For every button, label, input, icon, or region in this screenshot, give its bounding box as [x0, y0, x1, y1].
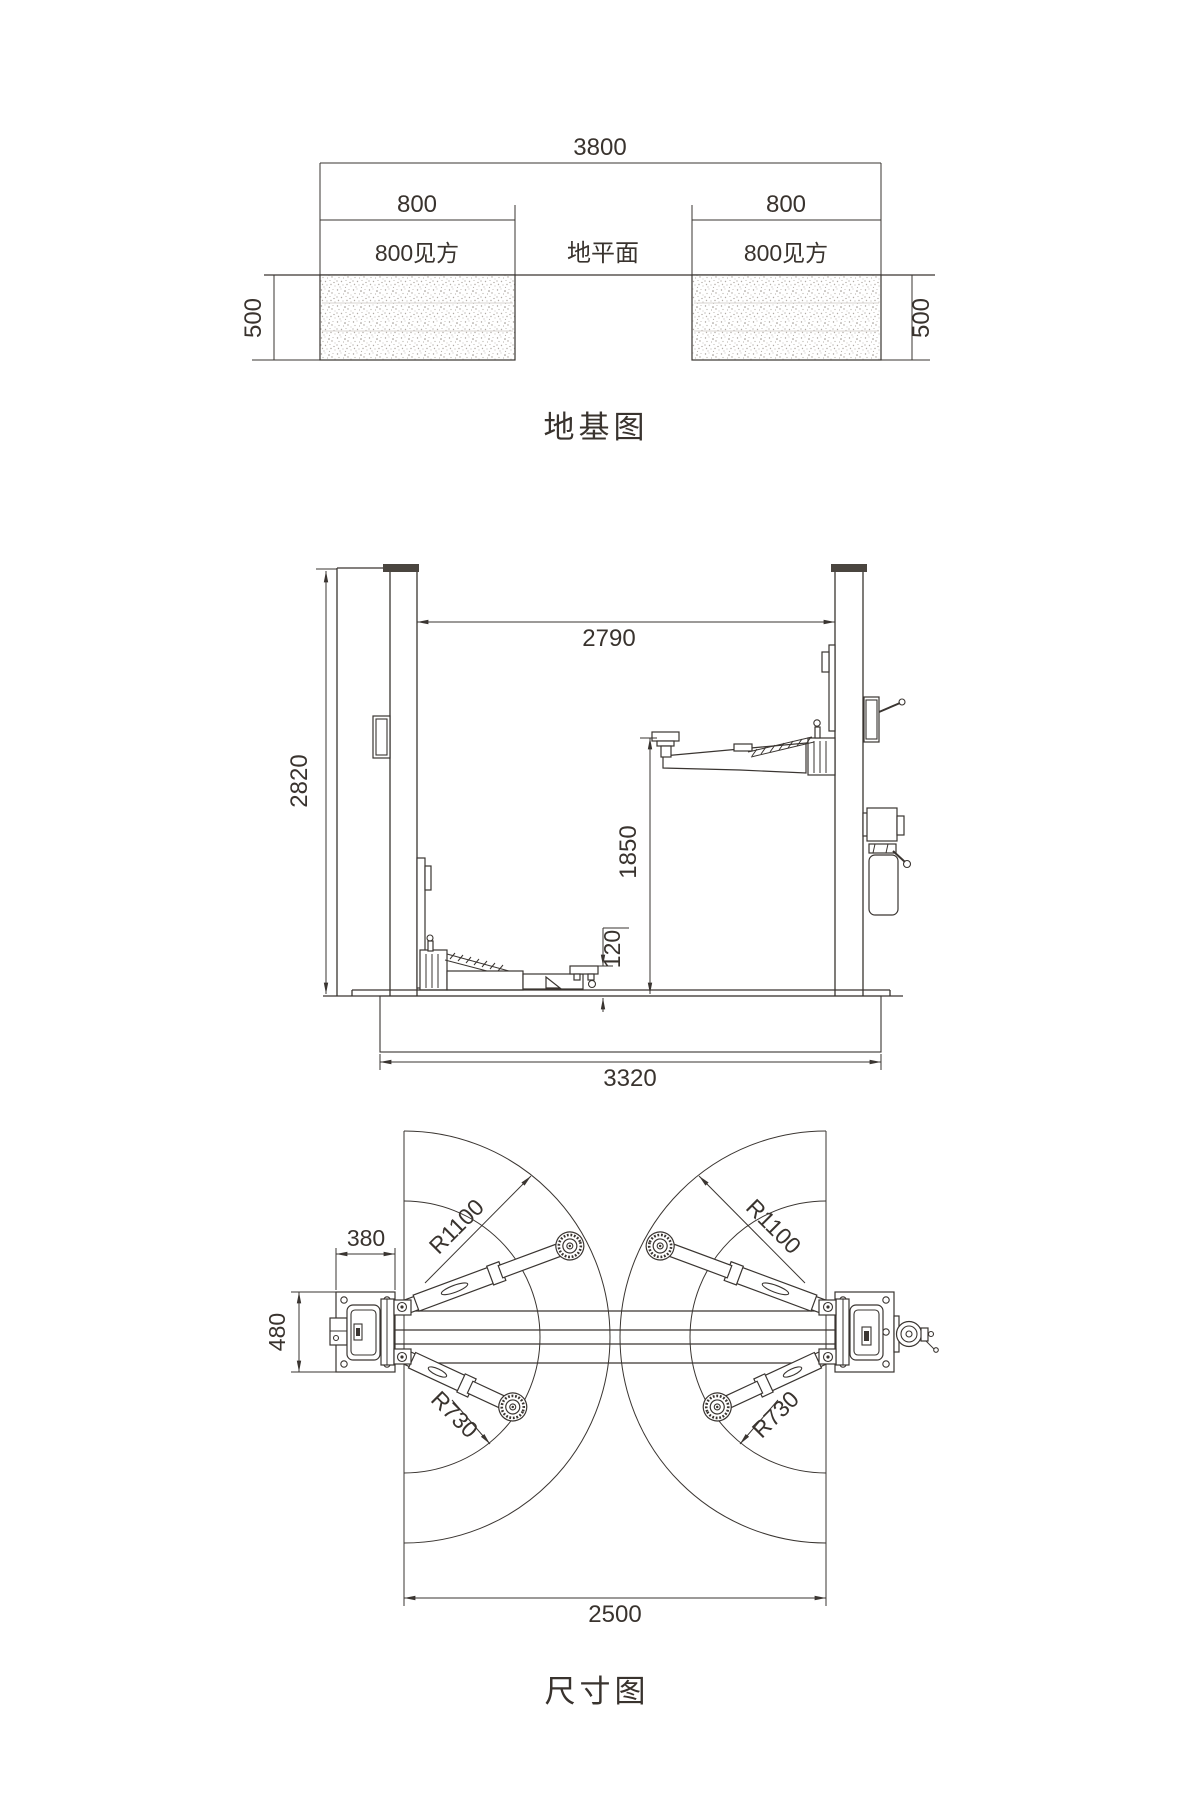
label-ground-plane: 地平面 — [567, 240, 639, 267]
top-view-motor — [894, 1316, 938, 1352]
control-box — [864, 697, 905, 742]
label-800-square-right: 800见方 — [744, 240, 828, 266]
top-view: 380 480 R1100 R1100 R730 R730 2500 尺 — [264, 1131, 938, 1709]
right-foundation-block — [692, 275, 881, 360]
top-view-left-column — [330, 1292, 411, 1372]
dim-480: 480 — [264, 1292, 336, 1372]
top-view-title: 尺寸图 — [545, 1674, 650, 1709]
base-and-floor — [323, 990, 903, 1052]
label-r1100-right: R1100 — [741, 1194, 806, 1259]
dim-120: 120 — [596, 928, 629, 1012]
foundation-slab — [380, 996, 881, 1052]
dim-3320-label: 3320 — [603, 1065, 656, 1092]
dim-2820: 2820 — [286, 569, 337, 994]
drawing-sheet: 3800 800 800 800见方 800见方 地平面 — [0, 0, 1200, 1800]
drive-through-rails — [394, 1311, 836, 1363]
front-right-column — [822, 564, 867, 996]
raised-arm — [652, 720, 835, 775]
foundation-diagram: 3800 800 800 800见方 800见方 地平面 — [240, 134, 935, 445]
foundation-title: 地基图 — [544, 410, 649, 445]
left-foundation-block — [320, 275, 515, 360]
motor — [867, 808, 897, 841]
dim-480-label: 480 — [264, 1313, 290, 1351]
dim-2820-label: 2820 — [286, 754, 313, 807]
dim-2790-label: 2790 — [582, 625, 635, 652]
dim-3320: 3320 — [380, 1054, 881, 1092]
dim-2500-label: 2500 — [588, 1601, 641, 1628]
dim-120-label: 120 — [599, 930, 625, 968]
dim-1850-label: 1850 — [615, 825, 642, 878]
dim-800-left-label: 800 — [397, 191, 437, 218]
left-column-cap — [383, 564, 419, 572]
dim-380-label: 380 — [347, 1225, 385, 1251]
front-view: 2820 2790 1850 120 3320 — [286, 564, 911, 1092]
right-column-cap — [831, 564, 867, 572]
raised-arm-pad — [652, 732, 679, 757]
dim-800-right-label: 800 — [766, 191, 806, 218]
dim-2790: 2790 — [417, 622, 835, 652]
dim-2500: 2500 — [404, 1598, 826, 1628]
lowered-arm — [417, 858, 598, 990]
front-left-column — [337, 564, 419, 996]
dim-500-left: 500 — [240, 275, 320, 360]
dim-500-left-label: 500 — [240, 298, 267, 338]
top-view-right-column — [819, 1292, 938, 1372]
dim-380: 380 — [336, 1225, 395, 1290]
power-unit — [863, 808, 911, 915]
dim-500-right-label: 500 — [908, 298, 935, 338]
carriage-slide — [829, 645, 835, 731]
oil-reservoir — [869, 855, 898, 915]
label-r1100-left: R1100 — [424, 1194, 489, 1259]
dim-3800-label: 3800 — [573, 134, 626, 161]
dim-500-right: 500 — [881, 275, 935, 360]
lift-technical-drawing: 3800 800 800 800见方 800见方 地平面 — [0, 0, 1200, 1800]
label-800-square-left: 800见方 — [375, 240, 459, 266]
